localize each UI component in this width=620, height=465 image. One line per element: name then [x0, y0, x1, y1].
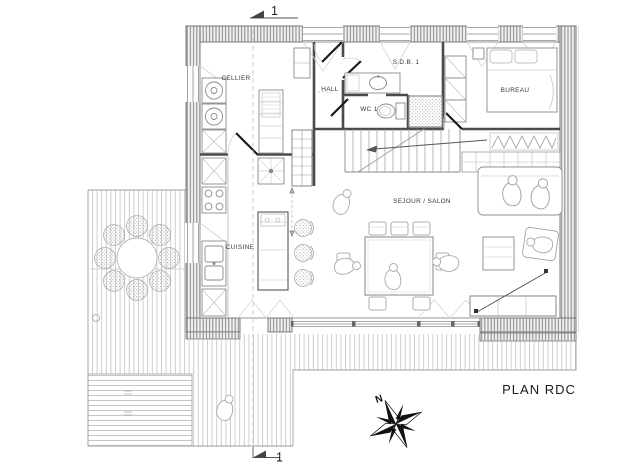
stair-storage	[462, 133, 560, 172]
dining-set	[334, 222, 460, 310]
section-number-bottom: 1	[276, 451, 283, 465]
coffee-table	[483, 237, 514, 270]
cooktop	[202, 187, 226, 213]
person-beanbag	[330, 186, 355, 216]
nightstand	[473, 48, 484, 59]
section-marker-bottom: 1	[253, 447, 283, 465]
bed	[487, 48, 557, 112]
section-number-top: 1	[271, 4, 278, 18]
stair-break-line	[358, 129, 424, 172]
floor-plan-drawing: CELLIER HALL S.D.B. 1 WC 1 BUREAU CUISIN…	[0, 0, 620, 465]
wall-bottom-pier	[268, 318, 292, 332]
room-label-wc1: WC 1	[360, 106, 377, 113]
kitchen-island	[258, 212, 288, 290]
section-marker-top: 1	[250, 4, 298, 18]
plan-title: PLAN RDC	[502, 382, 576, 397]
section-flag-icon	[253, 451, 266, 458]
tv-console	[470, 296, 556, 316]
room-label-cellier: CELLIER	[221, 75, 250, 82]
room-label-sejour: SEJOUR / SALON	[393, 198, 451, 205]
terrace-steps	[88, 374, 192, 446]
cellier-door-leaf	[236, 133, 258, 155]
terrace-table-set	[95, 216, 180, 301]
terrace-bottom-left	[192, 370, 293, 447]
pantry-cabinet	[292, 130, 312, 186]
vanity	[345, 73, 400, 93]
glazed-bay	[291, 321, 480, 327]
stair-direction-arrow	[374, 140, 487, 149]
section-flag-icon	[250, 11, 264, 19]
room-label-bureau: BUREAU	[501, 87, 530, 94]
toilet-tank	[396, 103, 405, 119]
wall-bottom-left	[186, 318, 240, 332]
entry-door-leaf	[322, 42, 342, 62]
room-label-sdb1: S.D.B. 1	[393, 59, 420, 66]
bar-stools	[295, 220, 314, 287]
compass-rose: N	[360, 389, 433, 460]
north-icon: N	[374, 393, 384, 406]
wall-bottom-right	[480, 318, 576, 332]
living-room	[330, 167, 562, 316]
floor-plan-page: CELLIER HALL S.D.B. 1 WC 1 BUREAU CUISIN…	[0, 0, 620, 465]
tall-unit	[259, 90, 283, 153]
shower	[409, 96, 443, 127]
room-label-cuisine: CUISINE	[226, 244, 254, 251]
chevron-bench	[492, 136, 556, 148]
wc-door-leaf	[331, 99, 348, 116]
room-label-hall: HALL	[321, 86, 338, 93]
bathroom-fixtures	[345, 73, 443, 127]
terrace-table	[117, 238, 157, 278]
